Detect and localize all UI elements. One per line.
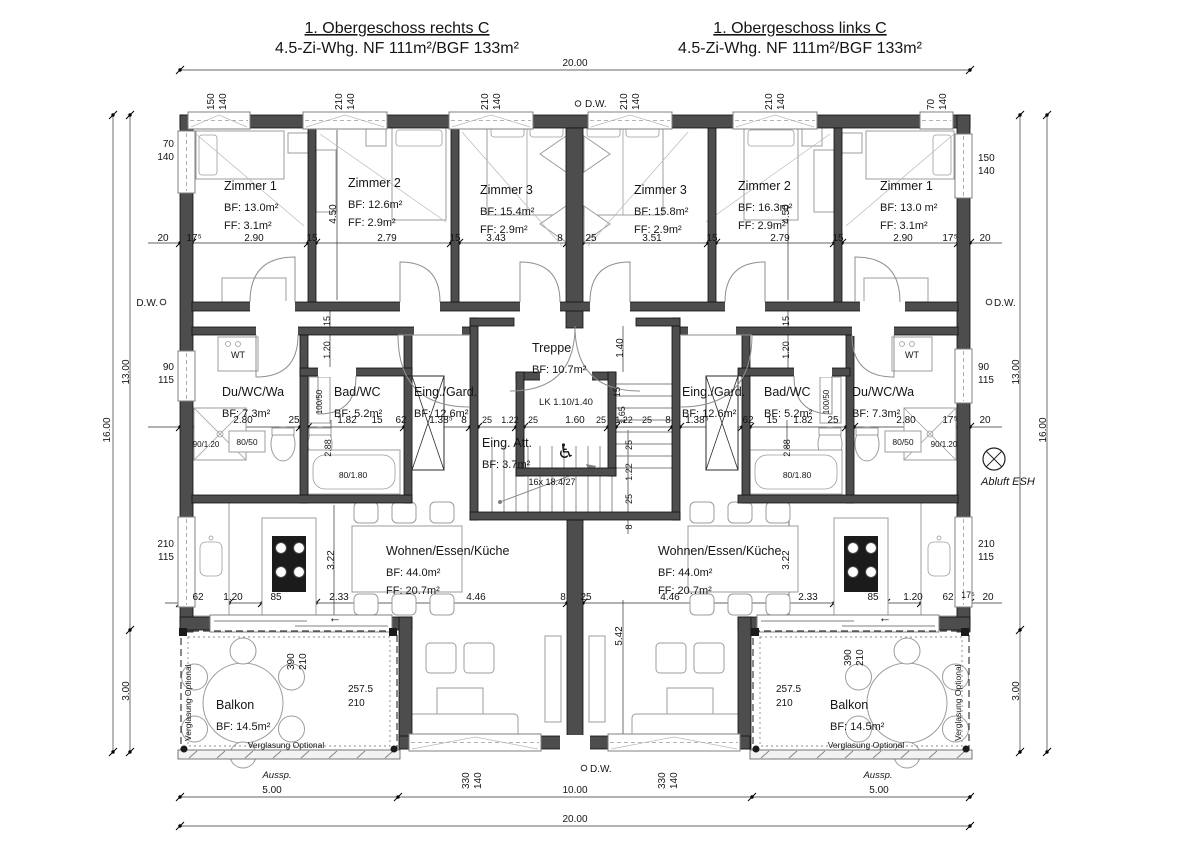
dim-label: 15 — [449, 233, 461, 244]
dim-label: 17⁵ — [942, 415, 957, 426]
dim-label: 17⁵ — [942, 233, 957, 244]
room-label-bad-wc-right: Bad/WC — [764, 385, 811, 399]
fixture-label: LK 1.10/1.40 — [539, 397, 593, 408]
annotation-label: Verglasung Optional — [953, 664, 963, 741]
dim-label: 257.5 — [776, 684, 801, 695]
room-label-zimmer2-left: FF: 2.9m² — [348, 217, 396, 229]
dim-label: 3.22 — [781, 550, 792, 570]
dim-label: 20 — [979, 415, 991, 426]
window-size-label: 210 — [480, 93, 491, 110]
room-label-zimmer2-left: Zimmer 2 — [348, 176, 401, 190]
dw-label: D.W. — [994, 298, 1016, 309]
fixture-label: 100/50 — [315, 389, 324, 414]
window-size-label: 330 — [461, 772, 472, 789]
dim-label: 13.00 — [121, 359, 132, 384]
dim-label: 5.00 — [262, 785, 282, 796]
room-label-eing-gard-right: BF: 12.6m² — [682, 408, 737, 420]
dim-label: 8 — [665, 415, 671, 426]
room-label-zimmer3-right: Zimmer 3 — [634, 183, 687, 197]
room-label-du-wc-wa-right: BF: 7.3m² — [852, 408, 901, 420]
direction-arrow: ← — [879, 610, 892, 625]
room-label-eing-gard-right: Eing./Gard. — [682, 385, 745, 399]
room-label-zimmer3-left: BF: 15.4m² — [480, 206, 535, 218]
dim-label: 25 — [624, 440, 634, 450]
window-size-label: 140 — [492, 93, 503, 110]
dw-label: D.W. — [590, 764, 612, 775]
page-subtitle-right: 4.5-Zi-Whg. NF 111m²/BGF 133m² — [678, 40, 923, 57]
window-size-label: 390 — [286, 653, 297, 670]
dim-label: 210 — [776, 698, 793, 709]
dim-label: 3.22 — [326, 550, 337, 570]
window-size-label: 115 — [978, 375, 994, 386]
dim-label: 25 — [596, 415, 606, 425]
fixture-label: 100/50 — [822, 389, 831, 414]
dw-label: D.W. — [136, 298, 158, 309]
window-size-label: 70 — [926, 98, 937, 110]
room-label-zimmer2-left: BF: 12.6m² — [348, 199, 403, 211]
room-label-treppe: Treppe — [532, 341, 571, 355]
window-size-label: 210 — [764, 93, 775, 110]
room-label-balkon-left: Balkon — [216, 698, 254, 712]
dim-label: 210 — [348, 698, 365, 709]
fixture-label: 90/1.20 — [193, 440, 220, 449]
dim-label: 10.00 — [562, 785, 587, 796]
annotation-label: Verglasung Optional — [248, 740, 325, 750]
window-size-label: 140 — [938, 93, 949, 110]
dim-label: 1.20 — [223, 592, 243, 603]
annotation-label: 16x 18.4/27 — [528, 477, 575, 487]
room-label-wohnen-left: BF: 44.0m² — [386, 567, 441, 579]
room-label-wohnen-right: FF: 20.7m² — [658, 585, 712, 597]
window-size-label: 140 — [157, 152, 174, 163]
room-label-eing-att: Eing. Att. — [482, 436, 532, 450]
dim-label: 15 — [322, 316, 332, 326]
dim-label: 8 — [557, 233, 563, 244]
page-title-right: 1. Obergeschoss links C — [713, 20, 886, 37]
dim-label: 5.00 — [869, 785, 889, 796]
dim-label: 257.5 — [348, 684, 373, 695]
dim-label: 5.42 — [614, 626, 625, 646]
dim-label: 2.33 — [798, 592, 818, 603]
dim-label: 1.20 — [903, 592, 923, 603]
room-label-bad-wc-left: BF: 5.2m² — [334, 408, 383, 420]
dim-label: 2.88 — [782, 439, 792, 457]
dim-label: 85 — [867, 592, 879, 603]
dim-label: 15 — [706, 233, 718, 244]
annotation-label: Verglasung Optional — [183, 664, 193, 741]
dim-label: 15 — [832, 233, 844, 244]
window-size-label: 210 — [978, 539, 995, 550]
dim-label: 1.22 — [624, 463, 634, 481]
dim-label: 3.00 — [121, 681, 132, 701]
window-size-label: 210 — [619, 93, 630, 110]
room-label-zimmer3-left: Zimmer 3 — [480, 183, 533, 197]
room-label-zimmer1-left: BF: 13.0m² — [224, 202, 279, 214]
dw-label: D.W. — [585, 99, 607, 110]
annotation-label: Aussp. — [261, 770, 291, 781]
dim-label: 25 — [827, 415, 839, 426]
room-label-du-wc-wa-left: Du/WC/Wa — [222, 385, 284, 399]
room-label-zimmer1-right: Zimmer 1 — [880, 179, 933, 193]
window-size-label: 140 — [978, 166, 995, 177]
window-size-label: 140 — [669, 772, 680, 789]
dim-label: 3.00 — [1011, 681, 1022, 701]
window-size-label: 140 — [218, 93, 229, 110]
room-label-zimmer2-right: BF: 16.3m² — [738, 202, 793, 214]
window-size-label: 210 — [157, 539, 174, 550]
dim-label: 1.40 — [615, 338, 626, 358]
dim-label: 20 — [979, 233, 991, 244]
dim-label: 2.90 — [893, 233, 913, 244]
dim-label: 1.60 — [565, 415, 585, 426]
window-size-label: 140 — [473, 772, 484, 789]
room-label-bad-wc-left: Bad/WC — [334, 385, 381, 399]
page-subtitle-left: 4.5-Zi-Whg. NF 111m²/BGF 133m² — [275, 40, 520, 57]
window-size-label: 140 — [776, 93, 787, 110]
window-size-label: 90 — [978, 362, 990, 373]
room-label-zimmer3-right: FF: 2.9m² — [634, 224, 682, 236]
room-label-zimmer1-right: FF: 3.1m² — [880, 220, 928, 232]
dim-label: 15 — [612, 387, 622, 397]
dim-label: 8 — [560, 592, 566, 603]
room-label-eing-att: BF: 3.7m² — [482, 459, 531, 471]
dim-label: 25 — [528, 415, 538, 425]
window-size-label: 210 — [855, 649, 866, 666]
dim-label: 62 — [192, 592, 204, 603]
dim-label: 25 — [482, 415, 492, 425]
fixture-label: 80/50 — [892, 437, 914, 447]
annotation-label: Verglasung Optional — [828, 740, 905, 750]
dim-label: 85 — [270, 592, 282, 603]
dim-label: 2.90 — [244, 233, 264, 244]
room-label-eing-gard-left: Eing./Gard. — [414, 385, 477, 399]
dim-label: 16.00 — [102, 417, 113, 442]
wheelchair-icon: ♿ — [557, 441, 575, 463]
dim-label: 25 — [288, 415, 300, 426]
room-label-zimmer3-left: FF: 2.9m² — [480, 224, 528, 236]
fixture-label: 80/50 — [236, 437, 258, 447]
dim-label: 1.22 — [501, 415, 519, 425]
dim-label: 8 — [624, 524, 634, 529]
room-label-wohnen-right: BF: 44.0m² — [658, 567, 713, 579]
dim-label: 20 — [157, 233, 169, 244]
dim-label: 13.00 — [1011, 359, 1022, 384]
room-label-zimmer3-right: BF: 15.8m² — [634, 206, 689, 218]
dim-label: 62 — [395, 415, 407, 426]
window-size-label: 330 — [657, 772, 668, 789]
dim-label: 62 — [742, 415, 754, 426]
dim-label: 4.46 — [466, 592, 486, 603]
annotation-label: Aussp. — [862, 770, 892, 781]
dim-label: 2.79 — [770, 233, 790, 244]
dim-label: 16.00 — [1038, 417, 1049, 442]
dim-label: 1.20 — [781, 341, 791, 359]
page-title-left: 1. Obergeschoss rechts C — [305, 20, 490, 37]
dim-label: 15 — [306, 233, 318, 244]
dim-label: 2.33 — [329, 592, 349, 603]
window-size-label: 115 — [978, 552, 994, 563]
room-label-balkon-right: BF: 14.5m² — [830, 721, 885, 733]
dim-label: 25 — [624, 494, 634, 504]
room-label-wohnen-left: FF: 20.7m² — [386, 585, 440, 597]
window-size-label: 140 — [346, 93, 357, 110]
room-label-treppe: BF: 10.7m² — [532, 364, 587, 376]
window-size-label: 70 — [163, 139, 175, 150]
room-label-balkon-left: BF: 14.5m² — [216, 721, 271, 733]
room-label-wohnen-right: Wohnen/Essen/Küche — [658, 544, 782, 558]
dim-label: 62 — [942, 592, 954, 603]
dim-label: 20 — [982, 592, 994, 603]
window-size-label: 115 — [158, 552, 174, 563]
dim-label: 25 — [585, 233, 597, 244]
window-size-label: 390 — [843, 649, 854, 666]
fixture-label: WT — [905, 350, 919, 360]
fixture-label: 80/1.80 — [783, 470, 812, 480]
room-label-balkon-right: Balkon — [830, 698, 868, 712]
room-label-zimmer2-right: Zimmer 2 — [738, 179, 791, 193]
direction-arrow: ← — [329, 610, 342, 625]
room-label-zimmer1-left: FF: 3.1m² — [224, 220, 272, 232]
dim-label: 1.20 — [322, 341, 332, 359]
room-label-bad-wc-right: BF: 5.2m² — [764, 408, 813, 420]
window-size-label: 90 — [163, 362, 175, 373]
titles: 1. Obergeschoss rechts C 4.5-Zi-Whg. NF … — [275, 20, 923, 57]
dim-label: 17⁵ — [961, 590, 975, 600]
fixture-label: WT — [231, 350, 245, 360]
dim-label: 2.79 — [377, 233, 397, 244]
dim-label: 25 — [642, 415, 652, 425]
fixture-label: 80/1.80 — [339, 470, 368, 480]
dim-label: 25 — [580, 592, 592, 603]
dim-label: 15 — [781, 316, 791, 326]
fixture-label: 90/1.20 — [931, 440, 958, 449]
room-label-eing-gard-left: BF: 12.6m² — [414, 408, 469, 420]
dim-label: 2.88 — [323, 439, 333, 457]
dim-label: 4.50 — [328, 204, 339, 224]
window-size-label: 140 — [631, 93, 642, 110]
window-size-label: 115 — [158, 375, 174, 386]
dim-label: 1.22 — [615, 415, 633, 425]
window-size-label: 210 — [298, 653, 309, 670]
dim-label: 20.00 — [562, 814, 587, 825]
dim-label: 20.00 — [562, 58, 587, 69]
room-label-zimmer1-left: Zimmer 1 — [224, 179, 277, 193]
room-label-zimmer2-right: FF: 2.9m² — [738, 220, 786, 232]
window-size-label: 150 — [978, 153, 995, 164]
room-label-wohnen-left: Wohnen/Essen/Küche — [386, 544, 510, 558]
dim-label: 17⁵ — [186, 233, 201, 244]
window-size-label: 210 — [334, 93, 345, 110]
floor-plan-canvas: 20.00150140210140210140D.W.2101402101407… — [0, 0, 1200, 848]
room-label-du-wc-wa-right: Du/WC/Wa — [852, 385, 914, 399]
room-label-du-wc-wa-left: BF: 7.3m² — [222, 408, 271, 420]
window-size-label: 150 — [206, 93, 217, 110]
room-label-zimmer1-right: BF: 13.0 m² — [880, 202, 938, 214]
annotation-label: Abluft ESH — [980, 476, 1035, 488]
